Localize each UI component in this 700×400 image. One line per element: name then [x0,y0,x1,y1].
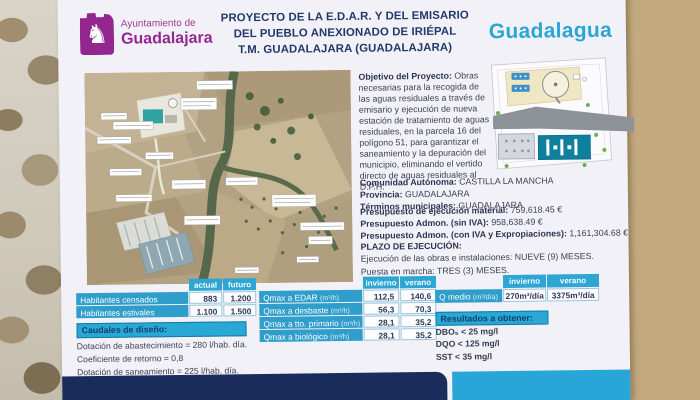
objective-label: Objetivo del Proyecto: [358,71,451,82]
table-cell: 1.200 [223,291,256,303]
column-header: actual [189,278,222,290]
row-label: Qmax a EDAR (m³/h) [259,290,362,303]
project-objective: Objetivo del Proyecto: Obras necesarias … [358,70,490,192]
column-header: verano [547,274,599,288]
row-label: Qmax a tto. primario (m³/h) [259,316,362,329]
table-cell: 35,2 [400,315,436,327]
edar-site-plan-diagram [483,54,634,176]
row-label: Habitantes estivales [76,305,188,318]
objective-text: Obras necesarias para la recogida de las… [359,70,490,191]
resultados-title-bar: Resultados a obtener: [435,311,548,326]
guadalagua-logo: Guadalagua [478,19,623,45]
table-cell: 70,3 [400,302,436,314]
table-corner-spacer [259,277,362,290]
bottom-cyan-band [452,370,630,400]
table-cell: 3375m³/día [547,288,599,302]
column-header: invierno [363,276,399,288]
qmax-table: invierno verano Qmax a EDAR (m³/h) 112,5… [259,276,437,342]
habitantes-table: actual futuro Habitantes censados 883 1.… [76,278,256,318]
table-cell: 112,5 [363,289,399,301]
row-label: Qmax a desbaste (m³/h) [259,303,362,316]
table-corner-spacer [76,279,188,292]
column-header: invierno [503,275,546,289]
logo-line2: Guadalajara [121,30,213,49]
execution-period: PLAZO DE EJECUCIÓN: Ejecución de las obr… [360,238,628,278]
table-cell: 56,3 [363,302,399,314]
table-cell: 28,1 [364,328,400,340]
aerial-map-image [84,70,353,285]
table-cell: 35,2 [401,328,437,340]
table-cell: 883 [189,291,222,303]
row-label: Habitantes censados [76,292,188,305]
caudales-title-bar: Caudales de diseño: [76,321,246,338]
row-label: Q medio (m³/día) [435,289,502,303]
caudales-lines: Dotación de abastecimiento = 280 l/hab. … [77,337,307,378]
table-cell: 270m³/día [503,289,546,303]
bottom-navy-band [62,372,447,400]
project-information-board: ♞ Ayuntamiento de Guadalajara PROYECTO D… [58,0,631,400]
stone-wall [0,0,66,400]
qmedio-table: invierno verano Q medio (m³/día) 270m³/d… [435,274,599,303]
budget-info: Presupuesto de ejecución material: 759,6… [360,204,628,243]
diagram-settling-tank [498,134,534,159]
column-header: futuro [223,278,256,290]
knight-horse-icon: ♞ [80,13,115,55]
ayuntamiento-logo: ♞ Ayuntamiento de Guadalajara [80,12,213,56]
row-label: Qmax a biológico (m³/h) [260,329,363,342]
resultados-lines: DBO₅ < 25 mg/l DQO < 125 mg/l SST < 35 m… [436,324,576,363]
table-cell: 28,1 [363,315,399,327]
diagram-biological-reactor [538,135,590,160]
table-cell: 140,6 [400,289,436,301]
table-cell: 1.500 [223,304,256,316]
ayuntamiento-logo-text: Ayuntamiento de Guadalajara [121,18,213,48]
project-title: PROYECTO DE LA E.D.A.R. Y DEL EMISARIO D… [206,8,485,59]
photo-of-information-board: ♞ Ayuntamiento de Guadalajara PROYECTO D… [0,0,700,400]
column-header: verano [400,276,436,288]
resultados-line-3: SST < 35 mg/l [436,349,576,363]
table-cell: 1.100 [189,304,222,316]
title-line-3: T.M. GUADALAJARA (GUADALAJARA) [206,40,484,59]
table-corner-spacer [435,275,502,289]
